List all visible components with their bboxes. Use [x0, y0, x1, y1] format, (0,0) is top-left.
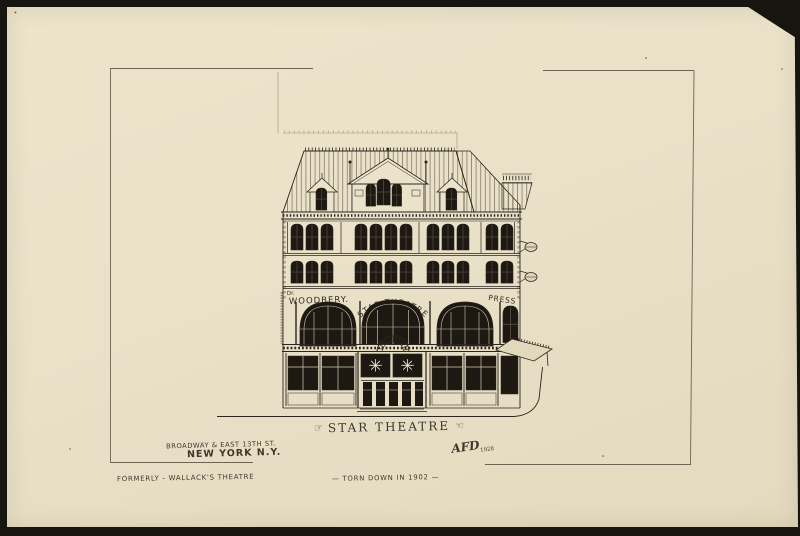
caption-title: STAR THEATRE [328, 419, 450, 435]
mansard-roof [283, 148, 532, 212]
fourth-floor-windows [283, 221, 520, 256]
side-roof-balustrade [502, 174, 532, 209]
building-facade: Dr. WOODBERY. STAR-THEATRE PRESS [281, 148, 552, 412]
construction-guide-lines [278, 72, 457, 149]
star-ornament-icon: ✳ [400, 357, 414, 377]
third-floor-windows [283, 261, 520, 289]
signature-initials: AFD [450, 438, 480, 456]
caption-title-row: ☞ STAR THEATRE ☜ [323, 419, 455, 435]
pointing-hand-left-icon: ☜ [455, 420, 464, 431]
pointing-hand-right-icon: ☞ [314, 423, 323, 434]
entrance-doors [357, 381, 427, 412]
star-ornament-icon: ✳ [368, 357, 382, 377]
eave-cornice [281, 212, 522, 219]
corner-shop-window [501, 356, 518, 394]
bracket-signs [520, 241, 537, 282]
sign-press: PRESS [488, 293, 517, 306]
entrance-star-panels: ✳ ✳ [357, 352, 427, 412]
scanned-drawing-page: Dr. WOODBERY. STAR-THEATRE PRESS [0, 0, 800, 536]
building-illustration: Dr. WOODBERY. STAR-THEATRE PRESS [0, 0, 800, 536]
